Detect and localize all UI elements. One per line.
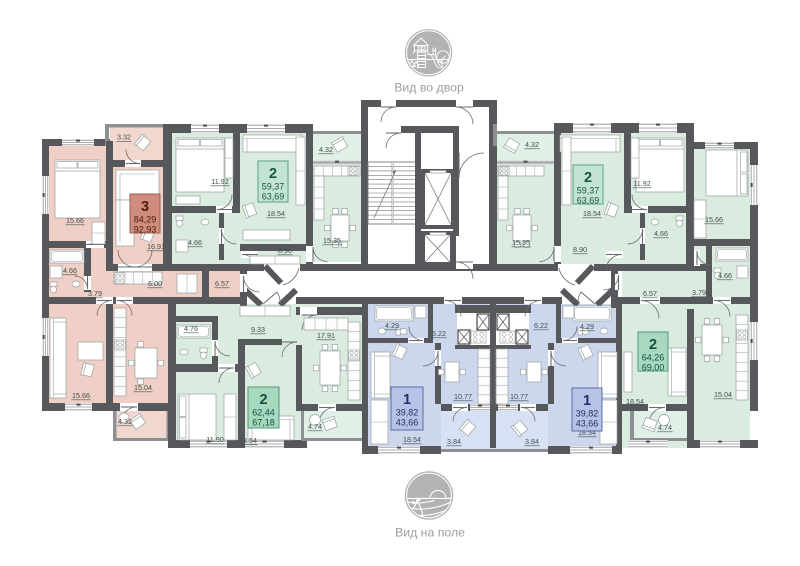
svg-text:1: 1 (403, 392, 411, 408)
svg-text:4.74: 4.74 (658, 423, 672, 432)
svg-text:63,69: 63,69 (262, 192, 285, 202)
svg-text:15.66: 15.66 (72, 391, 90, 400)
svg-text:43,66: 43,66 (396, 418, 419, 428)
svg-text:15.66: 15.66 (66, 216, 84, 225)
svg-text:39,82: 39,82 (576, 409, 599, 419)
svg-text:39,82: 39,82 (396, 408, 419, 418)
svg-text:4.32: 4.32 (118, 417, 132, 426)
svg-text:59,37: 59,37 (262, 182, 285, 192)
svg-text:3.84: 3.84 (525, 437, 539, 446)
svg-text:Вид во двор: Вид во двор (394, 81, 464, 95)
svg-text:64,26: 64,26 (642, 353, 665, 363)
svg-text:16.91: 16.91 (147, 242, 165, 251)
svg-text:11.92: 11.92 (633, 179, 650, 188)
svg-text:6.22: 6.22 (534, 321, 548, 330)
svg-text:4.29: 4.29 (580, 322, 594, 331)
svg-text:6.57: 6.57 (643, 289, 657, 298)
svg-text:15.04: 15.04 (134, 383, 152, 392)
svg-text:4.66: 4.66 (188, 238, 202, 247)
svg-text:10.77: 10.77 (510, 392, 528, 401)
svg-text:1: 1 (583, 393, 591, 409)
svg-text:17.91: 17.91 (317, 331, 335, 340)
svg-text:2: 2 (269, 166, 277, 182)
svg-text:3.84: 3.84 (447, 437, 461, 446)
svg-text:18.54: 18.54 (403, 435, 421, 444)
svg-text:9.33: 9.33 (251, 325, 265, 334)
svg-text:15.04: 15.04 (714, 390, 732, 399)
svg-text:63,69: 63,69 (577, 196, 600, 206)
svg-text:15.66: 15.66 (705, 215, 723, 224)
svg-text:4.66: 4.66 (718, 271, 732, 280)
svg-text:4.74: 4.74 (308, 422, 322, 431)
svg-text:4.32: 4.32 (319, 145, 333, 154)
svg-text:2: 2 (649, 337, 657, 353)
svg-text:3.79: 3.79 (88, 289, 102, 298)
svg-text:15.35: 15.35 (323, 236, 341, 245)
svg-text:4.66: 4.66 (63, 266, 77, 275)
svg-text:92,93: 92,93 (134, 225, 157, 235)
svg-text:43,66: 43,66 (576, 419, 599, 429)
svg-text:67,18: 67,18 (252, 418, 275, 428)
svg-text:15.35: 15.35 (512, 238, 530, 247)
svg-text:6.00: 6.00 (148, 279, 162, 288)
svg-text:18.54: 18.54 (626, 397, 644, 406)
svg-text:69,00: 69,00 (642, 363, 665, 373)
svg-text:4.32: 4.32 (525, 140, 539, 149)
svg-text:3.32: 3.32 (117, 133, 131, 142)
svg-text:2: 2 (259, 392, 267, 408)
svg-text:2: 2 (584, 170, 592, 186)
svg-text:18.54: 18.54 (239, 436, 257, 445)
svg-text:4.76: 4.76 (184, 324, 198, 333)
svg-text:11.92: 11.92 (211, 177, 228, 186)
svg-text:4.66: 4.66 (654, 229, 668, 238)
svg-text:8.90: 8.90 (278, 246, 292, 255)
svg-text:84,29: 84,29 (134, 215, 157, 225)
svg-text:4.29: 4.29 (385, 321, 399, 330)
svg-text:8.90: 8.90 (573, 245, 587, 254)
svg-text:Вид на поле: Вид на поле (395, 526, 465, 540)
svg-text:6.22: 6.22 (432, 329, 446, 338)
svg-text:10.77: 10.77 (454, 392, 472, 401)
svg-text:59,37: 59,37 (577, 186, 600, 196)
svg-text:3: 3 (141, 199, 149, 215)
svg-text:62,44: 62,44 (252, 408, 275, 418)
svg-text:18.54: 18.54 (583, 209, 601, 218)
svg-text:6.57: 6.57 (215, 279, 229, 288)
svg-text:11.90: 11.90 (206, 435, 223, 444)
svg-text:18.54: 18.54 (267, 209, 285, 218)
svg-text:3.79: 3.79 (692, 288, 706, 297)
